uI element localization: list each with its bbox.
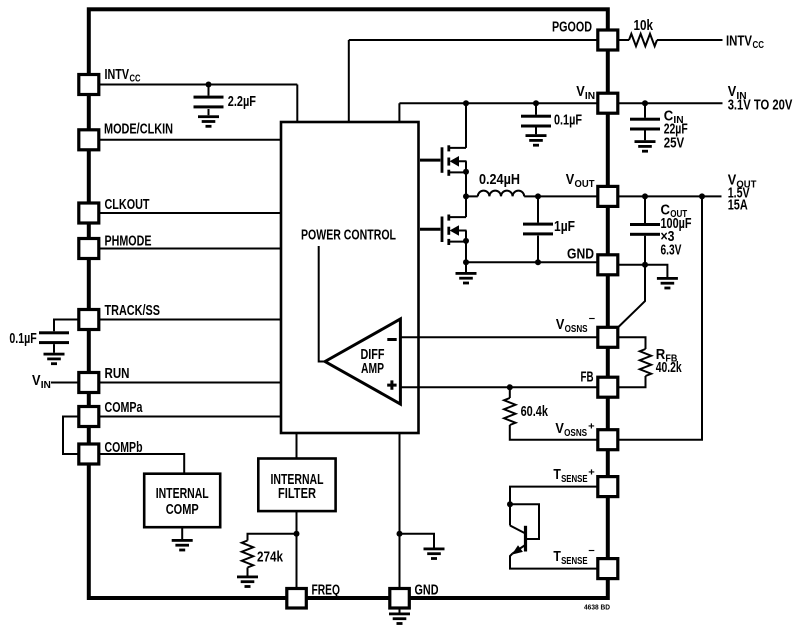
svg-text:CC: CC bbox=[753, 39, 765, 51]
svg-text:PHMODE: PHMODE bbox=[105, 234, 152, 250]
svg-text:+: + bbox=[588, 467, 595, 479]
svg-text:V: V bbox=[555, 421, 564, 437]
svg-text:MODE/CLKIN: MODE/CLKIN bbox=[104, 122, 173, 138]
svg-text:GND: GND bbox=[567, 247, 594, 263]
svg-text:2.2µF: 2.2µF bbox=[228, 94, 256, 110]
svg-text:10k: 10k bbox=[634, 18, 654, 34]
svg-text:40.2k: 40.2k bbox=[656, 360, 683, 376]
svg-text:V: V bbox=[576, 84, 585, 100]
svg-text:INTERNAL: INTERNAL bbox=[156, 486, 209, 502]
svg-text:GND: GND bbox=[415, 583, 439, 599]
svg-text:PGOOD: PGOOD bbox=[552, 20, 592, 36]
svg-text:6.3V: 6.3V bbox=[661, 243, 682, 259]
svg-text:V: V bbox=[32, 373, 41, 389]
svg-text:RUN: RUN bbox=[105, 366, 130, 382]
svg-text:V: V bbox=[556, 317, 565, 333]
svg-text:−: − bbox=[588, 545, 595, 557]
svg-text:COMP: COMP bbox=[166, 502, 199, 518]
svg-text:T: T bbox=[553, 467, 561, 483]
svg-text:CLKOUT: CLKOUT bbox=[105, 197, 150, 213]
svg-text:CC: CC bbox=[130, 73, 141, 85]
svg-text:OSNS: OSNS bbox=[564, 427, 587, 439]
svg-text:SENSE: SENSE bbox=[561, 555, 588, 567]
svg-text:SENSE: SENSE bbox=[561, 473, 588, 485]
svg-text:0.1µF: 0.1µF bbox=[9, 331, 37, 347]
svg-text:INTV: INTV bbox=[726, 34, 752, 50]
svg-text:274k: 274k bbox=[257, 550, 284, 566]
svg-text:0.1µF: 0.1µF bbox=[554, 113, 582, 129]
svg-text:4638 BD: 4638 BD bbox=[584, 603, 611, 612]
svg-text:OUT: OUT bbox=[575, 178, 596, 190]
svg-text:FILTER: FILTER bbox=[278, 486, 316, 502]
svg-text:15A: 15A bbox=[728, 198, 748, 214]
svg-text:AMP: AMP bbox=[361, 361, 384, 377]
svg-text:1µF: 1µF bbox=[554, 219, 575, 235]
svg-text:0.24µH: 0.24µH bbox=[479, 172, 520, 188]
svg-text:POWER CONTROL: POWER CONTROL bbox=[301, 228, 396, 244]
svg-text:+: + bbox=[588, 421, 595, 433]
svg-text:60.4k: 60.4k bbox=[521, 404, 549, 420]
svg-text:COMPa: COMPa bbox=[105, 400, 144, 416]
svg-text:COMPb: COMPb bbox=[105, 440, 143, 456]
svg-text:25V: 25V bbox=[664, 136, 685, 152]
svg-text:FREQ: FREQ bbox=[312, 583, 341, 599]
svg-text:V: V bbox=[566, 172, 575, 188]
svg-text:3.1V TO 20V: 3.1V TO 20V bbox=[728, 98, 793, 114]
svg-text:FB: FB bbox=[581, 370, 594, 386]
svg-text:OSNS: OSNS bbox=[565, 323, 588, 335]
svg-text:T: T bbox=[553, 549, 561, 565]
svg-text:IN: IN bbox=[585, 90, 595, 102]
svg-text:IN: IN bbox=[41, 379, 51, 391]
svg-text:INTV: INTV bbox=[105, 67, 130, 83]
svg-text:TRACK/SS: TRACK/SS bbox=[105, 303, 161, 319]
svg-text:−: − bbox=[589, 313, 596, 325]
